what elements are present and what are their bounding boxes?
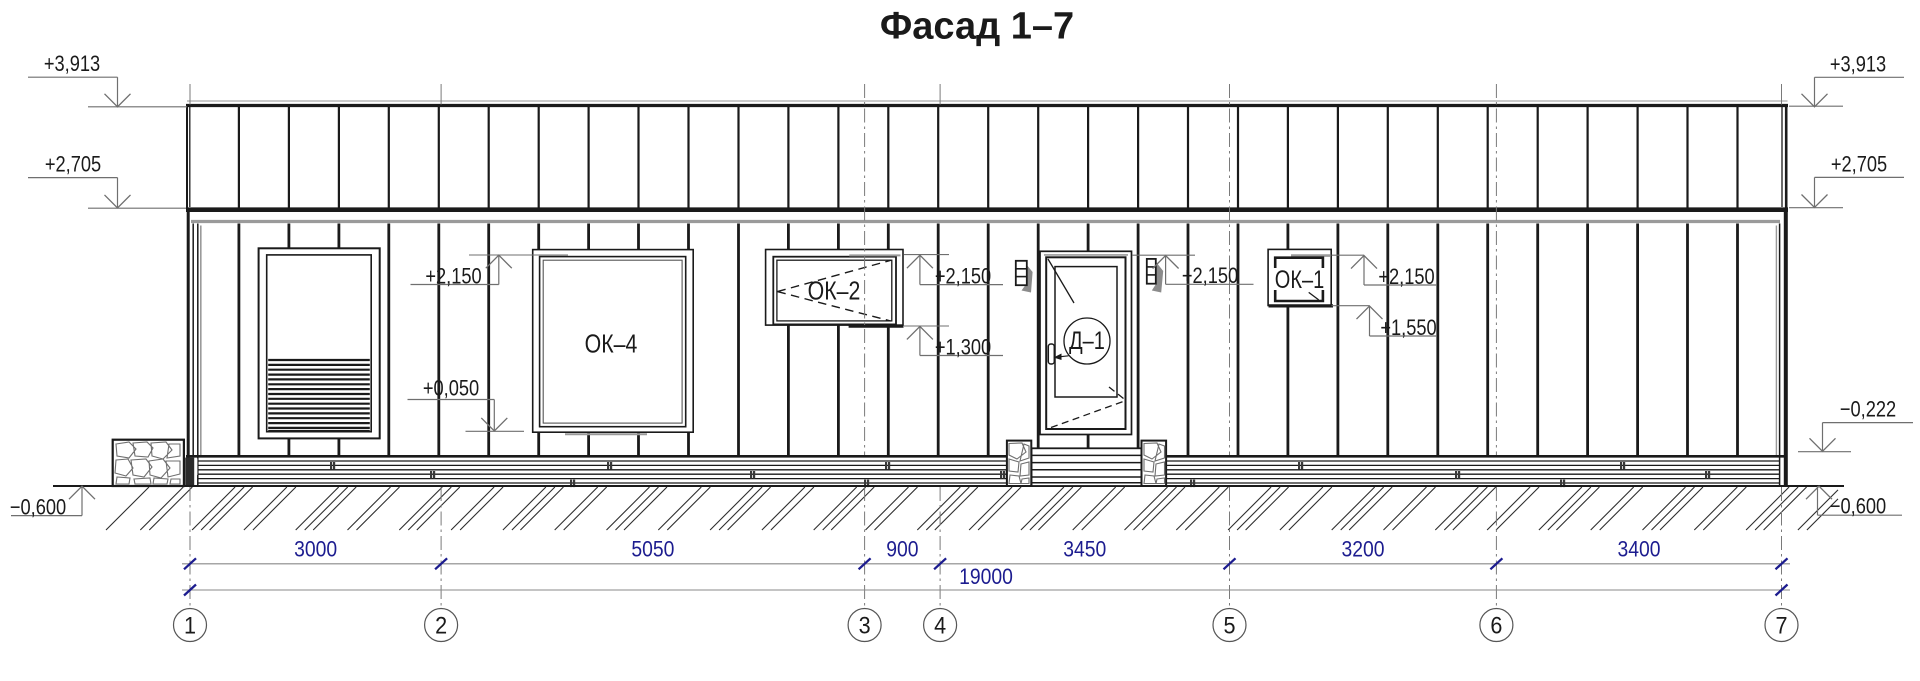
svg-text:−0,600: −0,600 xyxy=(1830,495,1886,519)
svg-text:+1,550: +1,550 xyxy=(1380,316,1436,340)
svg-text:+2,705: +2,705 xyxy=(1831,153,1887,177)
svg-text:1: 1 xyxy=(184,611,196,638)
svg-text:+2,705: +2,705 xyxy=(45,153,101,177)
svg-text:ОК–4: ОК–4 xyxy=(585,330,638,360)
svg-text:900: 900 xyxy=(886,537,918,562)
svg-text:Фасад 1–7: Фасад 1–7 xyxy=(880,6,1074,48)
svg-text:2: 2 xyxy=(435,611,447,638)
svg-text:+2,150: +2,150 xyxy=(425,265,481,289)
svg-text:7: 7 xyxy=(1775,611,1787,638)
svg-text:3200: 3200 xyxy=(1341,537,1384,562)
svg-text:5: 5 xyxy=(1223,611,1235,638)
svg-text:3000: 3000 xyxy=(294,537,337,562)
svg-text:4: 4 xyxy=(934,611,946,638)
svg-text:19000: 19000 xyxy=(959,565,1013,590)
svg-text:+1,300: +1,300 xyxy=(935,336,991,360)
svg-text:Д–1: Д–1 xyxy=(1069,327,1105,355)
svg-text:+0,050: +0,050 xyxy=(423,377,479,401)
svg-text:3450: 3450 xyxy=(1063,537,1106,562)
svg-text:+3,913: +3,913 xyxy=(44,53,100,77)
svg-text:3: 3 xyxy=(859,611,871,638)
svg-text:ОК–2: ОК–2 xyxy=(808,277,861,307)
svg-text:+2,150: +2,150 xyxy=(1182,265,1238,289)
svg-text:3400: 3400 xyxy=(1617,537,1660,562)
svg-text:−0,222: −0,222 xyxy=(1840,398,1896,422)
svg-text:6: 6 xyxy=(1490,611,1502,638)
svg-text:+2,150: +2,150 xyxy=(1378,265,1434,289)
svg-text:−0,600: −0,600 xyxy=(10,496,66,520)
svg-text:5050: 5050 xyxy=(631,537,674,562)
svg-text:ОК–1: ОК–1 xyxy=(1275,266,1324,294)
svg-text:+2,150: +2,150 xyxy=(935,265,991,289)
svg-text:+3,913: +3,913 xyxy=(1830,53,1886,77)
